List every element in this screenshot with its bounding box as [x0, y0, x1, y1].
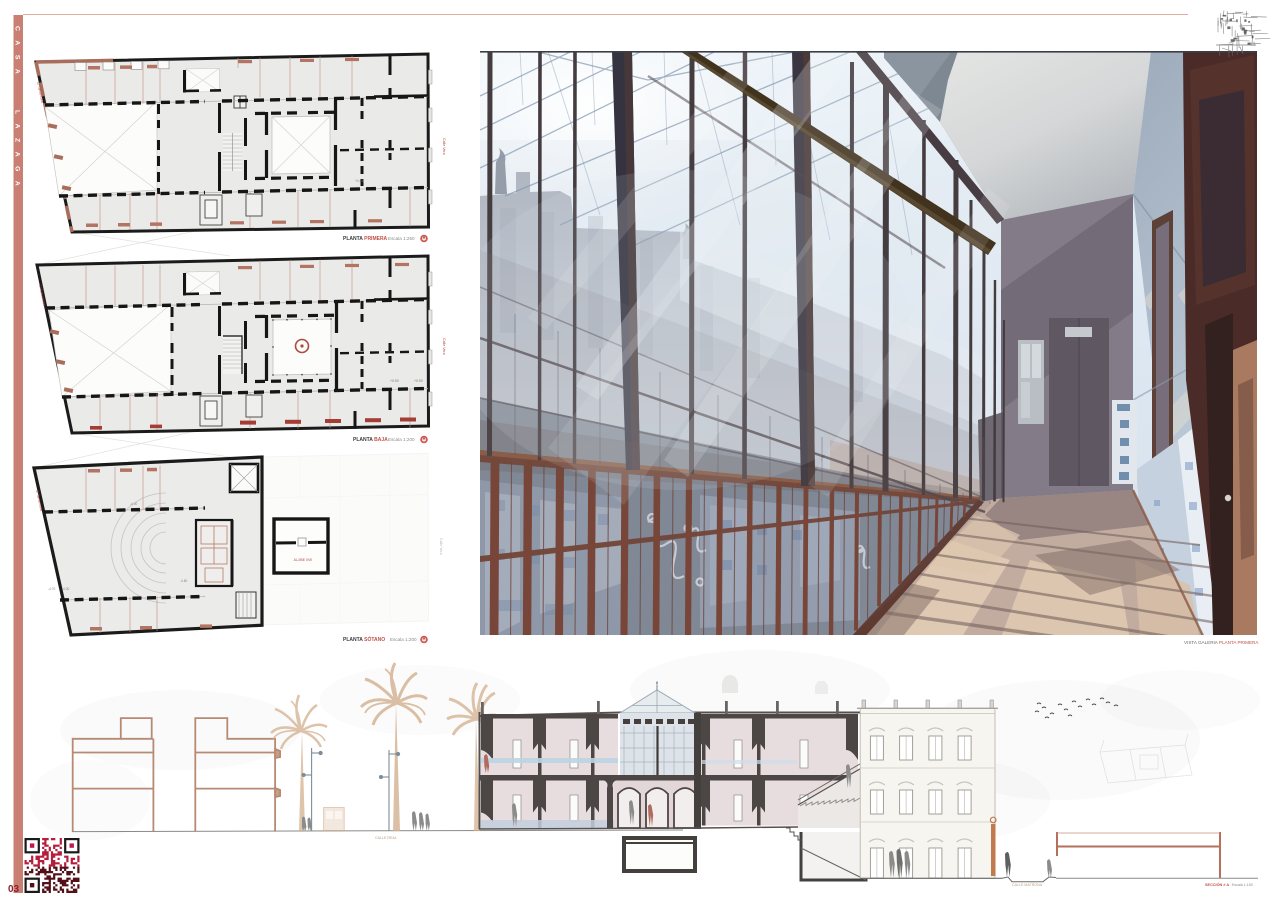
- svg-text:Calle Vera: Calle Vera: [442, 338, 446, 355]
- svg-text:VISTA GALERIA PLANTA PRIMERA: VISTA GALERIA PLANTA PRIMERA: [1184, 640, 1259, 645]
- svg-text:CASA: CASA: [14, 26, 21, 83]
- svg-text:CALLE REAL: CALLE REAL: [375, 836, 397, 840]
- svg-text:-4.80: -4.80: [180, 579, 187, 583]
- svg-text:-4.00: -4.00: [130, 502, 137, 506]
- svg-text:Calle Vera: Calle Vera: [439, 538, 443, 555]
- svg-text:Escala 1:250: Escala 1:250: [388, 236, 415, 241]
- svg-text:-4.70: -4.70: [48, 587, 55, 591]
- svg-text:-4.30: -4.30: [62, 587, 69, 591]
- svg-text:PLANTA SÓTANO: PLANTA SÓTANO: [343, 635, 385, 643]
- svg-text:Escala 1:200: Escala 1:200: [390, 637, 417, 642]
- svg-text:SECCIÓN # A: SECCIÓN # A: [1205, 882, 1229, 887]
- svg-text:CALLE MATRONA: CALLE MATRONA: [1012, 883, 1043, 887]
- svg-text:+0.90: +0.90: [414, 379, 423, 383]
- svg-text:PLANTA BAJA: PLANTA BAJA: [353, 437, 388, 443]
- svg-text:Escala 1:150: Escala 1:150: [1232, 883, 1253, 887]
- svg-text:Escala 1:200: Escala 1:200: [388, 437, 415, 442]
- svg-text:03: 03: [8, 884, 20, 895]
- svg-text:+1.00: +1.00: [355, 179, 364, 183]
- svg-text:PLANTA PRIMERA: PLANTA PRIMERA: [343, 236, 388, 242]
- svg-text:LAZAGA: LAZAGA: [14, 110, 21, 195]
- svg-text:Calle Vera: Calle Vera: [442, 138, 446, 155]
- svg-text:ALJIBE XVII: ALJIBE XVII: [294, 558, 313, 562]
- svg-text:+0.90: +0.90: [390, 379, 399, 383]
